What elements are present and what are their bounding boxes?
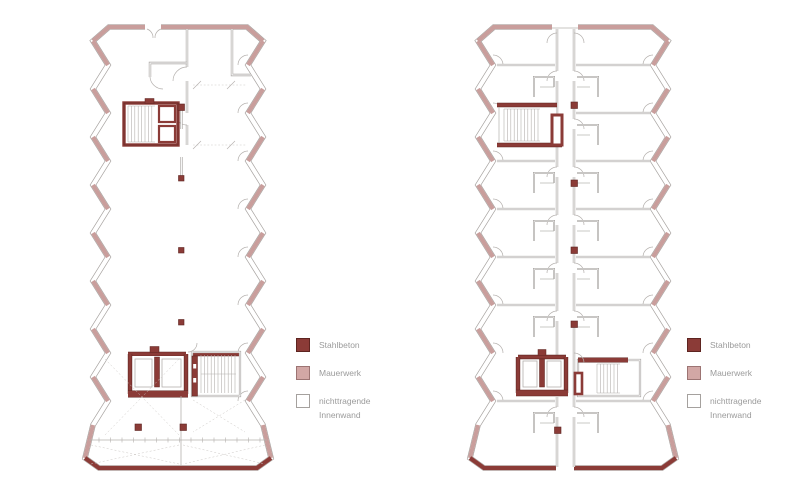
mauerwerk-swatch-icon [296, 366, 310, 380]
legend-label-innenwand: nichttragende Innenwand [710, 395, 772, 421]
legend-item-stahlbeton: Stahlbeton [687, 338, 800, 352]
legend-label-stahlbeton: Stahlbeton [710, 339, 772, 352]
floor-plan-left [85, 24, 271, 468]
legend-label-innenwand: nichttragende Innenwand [319, 395, 381, 421]
floor-plan-right [470, 24, 676, 472]
mauerwerk-swatch-icon [687, 366, 701, 380]
innenwand-swatch-icon [687, 394, 701, 408]
legend-item-innenwand: nichttragende Innenwand [687, 394, 800, 421]
page: Stahlbeton Mauerwerk nichttragende Innen… [0, 0, 800, 501]
legend-item-mauerwerk: Mauerwerk [296, 366, 416, 380]
legend-item-mauerwerk: Mauerwerk [687, 366, 800, 380]
stahlbeton-swatch-icon [296, 338, 310, 352]
legend-left: Stahlbeton Mauerwerk nichttragende Innen… [296, 338, 416, 436]
legend-label-mauerwerk: Mauerwerk [319, 367, 381, 380]
legend-label-stahlbeton: Stahlbeton [319, 339, 381, 352]
legend-right: Stahlbeton Mauerwerk nichttragende Innen… [687, 338, 800, 436]
innenwand-swatch-icon [296, 394, 310, 408]
legend-label-mauerwerk: Mauerwerk [710, 367, 772, 380]
legend-item-innenwand: nichttragende Innenwand [296, 394, 416, 421]
legend-item-stahlbeton: Stahlbeton [296, 338, 416, 352]
stahlbeton-swatch-icon [687, 338, 701, 352]
